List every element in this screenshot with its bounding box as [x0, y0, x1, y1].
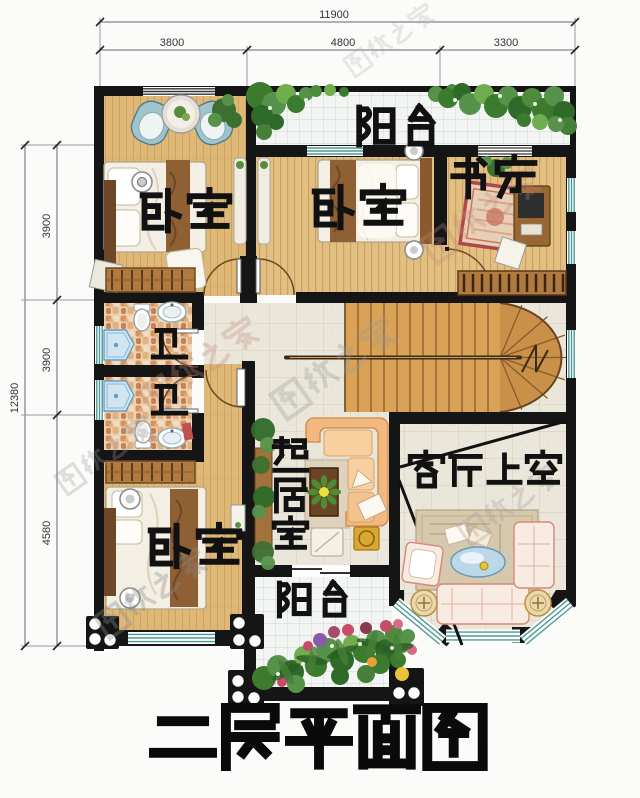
- svg-text:3300: 3300: [494, 37, 518, 49]
- svg-text:4800: 4800: [331, 37, 355, 49]
- svg-text:3800: 3800: [160, 37, 184, 49]
- svg-text:4580: 4580: [41, 521, 53, 545]
- svg-text:11900: 11900: [319, 9, 349, 21]
- svg-text:12380: 12380: [9, 383, 21, 414]
- svg-text:3900: 3900: [41, 348, 53, 372]
- svg-text:3900: 3900: [41, 214, 53, 238]
